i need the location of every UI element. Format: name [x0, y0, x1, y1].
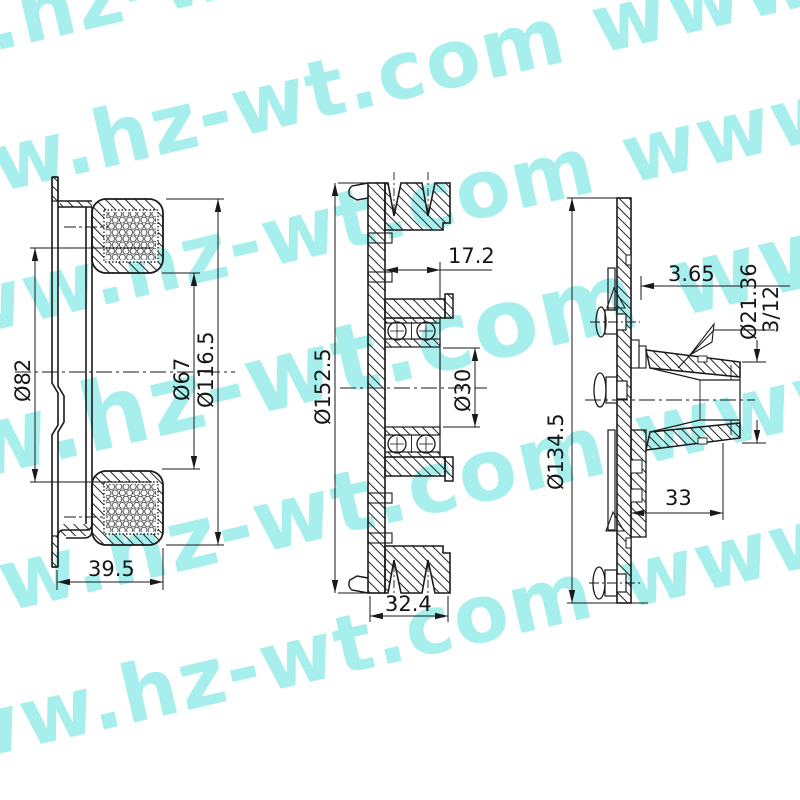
hub-sleeve-notch2 — [631, 489, 642, 502]
coil-winding-top — [106, 212, 156, 260]
bearing-housing-lip-bottom — [445, 457, 453, 481]
dim-label-17-2: 17.2 — [448, 244, 495, 268]
belt-band-bottom — [385, 546, 450, 593]
dim-label-39-5: 39.5 — [88, 557, 135, 581]
cone-wall-upper — [646, 350, 740, 377]
bracket-foot — [52, 536, 58, 567]
pulley-bottom-lip — [349, 576, 368, 593]
inner-race-top — [385, 339, 440, 347]
inner-race-bottom — [385, 427, 440, 435]
cone-notch-lower — [698, 438, 707, 444]
disc-notch-top — [626, 255, 631, 265]
hub-flange-step1 — [631, 340, 639, 368]
cone-wall-lower — [646, 423, 740, 450]
dim-label-33: 33 — [665, 486, 692, 510]
cone-notch-upper — [698, 356, 707, 362]
hub-sleeve-notch1 — [631, 460, 642, 473]
middle-view-pulley: Ø152.5 17.2 Ø30 32.4 — [311, 172, 495, 622]
dim-label-dia67: Ø67 — [170, 358, 194, 401]
dim-label-dia134-5: Ø134.5 — [544, 413, 568, 490]
drawing-canvas: www.hz-wt.com www.hz-wt.com www.hz-wt.co… — [0, 0, 800, 800]
pulley-top-lip — [349, 183, 368, 200]
coil-winding-bottom — [106, 484, 156, 532]
bearing-housing-top — [385, 299, 445, 318]
left-view-coil-housing: Ø82 Ø67 Ø116.5 39.5 — [11, 177, 235, 590]
disc-notch-bottom — [626, 538, 631, 548]
hub-boss-body — [606, 377, 617, 403]
dim-label-dia30: Ø30 — [451, 369, 475, 412]
hub-sleeve-lower — [631, 430, 646, 537]
bearing-housing-bottom — [385, 457, 445, 476]
bracket-top-arm-hatch — [60, 201, 92, 207]
dim-label-3-65: 3.65 — [668, 262, 715, 286]
hub-boss-head — [617, 381, 627, 399]
bracket-bottom-arm-hatch — [60, 524, 90, 536]
dim-label-dia116-5: Ø116.5 — [194, 331, 218, 408]
bracket-lip — [52, 177, 58, 201]
belt-band-top — [385, 183, 450, 230]
bearing-housing-lip-top — [445, 294, 453, 318]
dim-label-32-4: 32.4 — [385, 592, 432, 616]
hub-boss-cap — [594, 373, 606, 407]
technical-drawing: Ø82 Ø67 Ø116.5 39.5 — [0, 0, 800, 800]
dim-label-dia21-36: Ø21.36 — [737, 263, 761, 340]
hub-flange-step2 — [639, 346, 646, 368]
dim-label-3-12: 3/12 — [759, 286, 783, 333]
dim-label-dia152-5: Ø152.5 — [311, 348, 335, 425]
right-view-hub: Ø134.5 3.65 Ø21.36 3/12 33 — [544, 198, 790, 603]
dim-label-dia82: Ø82 — [11, 359, 35, 402]
